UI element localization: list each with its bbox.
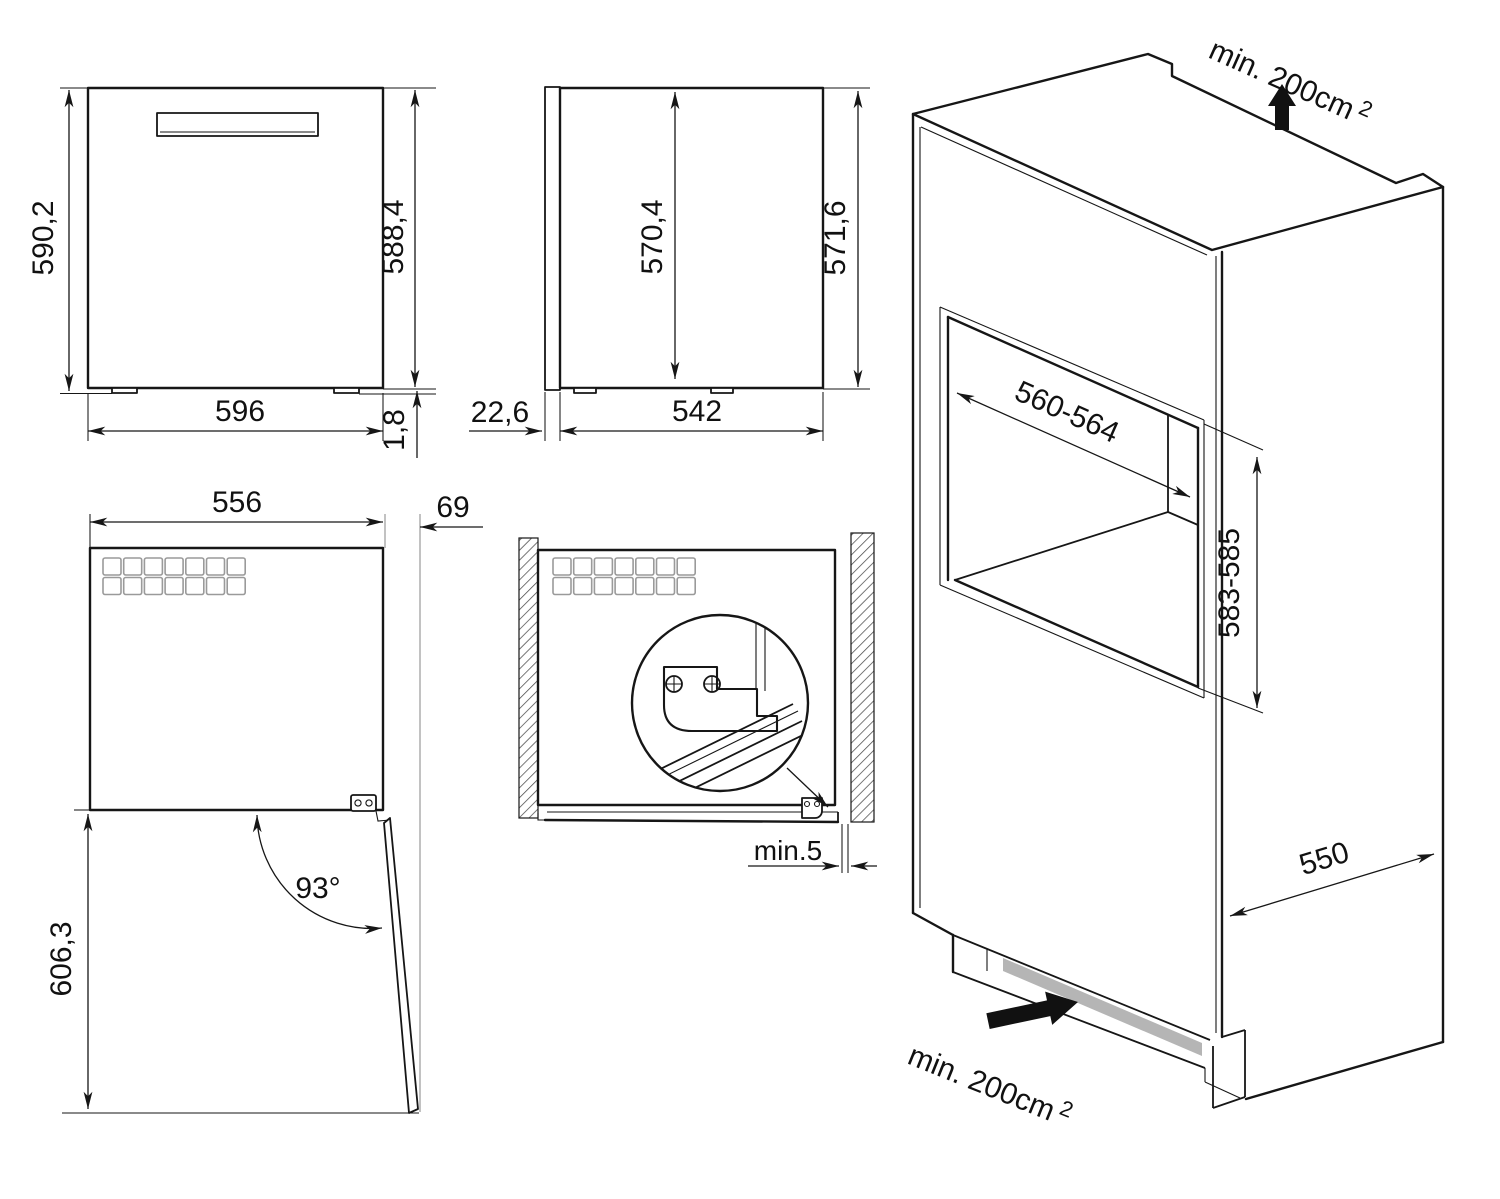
open-door-panel (384, 818, 418, 1113)
vent-area-bottom: min. 200cm 2 (903, 985, 1081, 1134)
dim-side-clearance-label: min.5 (754, 835, 822, 866)
hinge-bracket-small (802, 798, 822, 818)
dim-rear-height-label: 571,6 (819, 200, 852, 275)
installed-plan-view: min.5 (519, 533, 877, 873)
appliance-front-body (88, 88, 383, 388)
dimension-door-thickness: 22,6 (469, 392, 560, 441)
dim-swing-clearance-label: 606,3 (45, 921, 78, 996)
dimension-swing-clearance: 606,3 (45, 810, 419, 1113)
dim-body-height-label2: 588,4 (377, 199, 410, 274)
drawing-canvas: 590,2 571,6 588,4 596 1,8 570,4 (0, 0, 1500, 1199)
dimension-body-depth: 542 (560, 392, 823, 441)
dimension-width: 596 (88, 393, 383, 441)
dim-niche-height-label: 583-585 (1213, 528, 1246, 638)
cabinet-wall-right (851, 533, 874, 822)
front-view: 590,2 571,6 588,4 596 1,8 (27, 88, 436, 458)
dimension-foot-height: 1,8 (359, 391, 436, 458)
dimension-door-projection: 69 (420, 491, 483, 1112)
side-foot-rear (711, 388, 733, 393)
dimension-body-width: 556 (90, 486, 385, 548)
dimension-body-height: 571,6 588,4 (377, 88, 436, 389)
side-view: 570,4 571,6 22,6 542 (469, 87, 870, 441)
appliance-plan-body (90, 548, 383, 810)
plan-view: 93° 556 69 606,3 (45, 486, 483, 1113)
vent-bottom-label: min. 200cm (903, 1039, 1059, 1128)
front-foot-right (334, 388, 359, 393)
cabinet-wall-left (519, 538, 538, 818)
dim-body-width-label: 556 (212, 486, 262, 519)
vent-bottom-sup: 2 (1056, 1095, 1077, 1123)
installation-drawing-sheet: 590,2 571,6 588,4 596 1,8 570,4 (0, 0, 1500, 1199)
dim-interior-height-label: 570,4 (636, 199, 669, 274)
side-door-panel (545, 87, 560, 390)
screw-icon-right (704, 676, 720, 692)
cabinet-top-face (913, 54, 1443, 250)
dim-width-label: 596 (215, 395, 265, 428)
appliance-side-body (560, 88, 823, 388)
side-foot-front (574, 388, 596, 393)
dimension-rear-height: 571,6 (819, 88, 870, 389)
vent-top-sup: 2 (1355, 95, 1376, 123)
front-foot-left (112, 388, 137, 393)
dim-niche-width-label: 560-564 (1010, 375, 1124, 450)
dim-opening-angle-label: 93° (295, 872, 340, 905)
dimension-niche-width: 560-564 (957, 375, 1190, 497)
cabinet-bottom-right-edge (1246, 1042, 1443, 1099)
cabinet-iso-view: 560-564 583-585 550 min. 200cm 2 min. 20… (903, 30, 1443, 1134)
dim-door-thickness-label: 22,6 (471, 396, 529, 429)
dim-foot-height-label: 1,8 (378, 409, 411, 451)
dimension-side-clearance: min.5 (748, 824, 877, 873)
dimension-cabinet-depth: 550 (1230, 836, 1434, 916)
dim-door-projection-label: 69 (436, 491, 469, 524)
dim-cabinet-depth-label: 550 (1295, 836, 1353, 882)
screw-icon-left (666, 676, 682, 692)
cabinet-foot (1213, 1030, 1245, 1108)
dim-body-depth-label: 542 (672, 395, 722, 428)
dimension-niche-height: 583-585 (1198, 424, 1263, 713)
dimension-opening-angle: 93° (257, 815, 382, 928)
door-ajar (538, 812, 838, 822)
dim-overall-height-label: 590,2 (27, 200, 60, 275)
niche-opening (940, 307, 1204, 698)
